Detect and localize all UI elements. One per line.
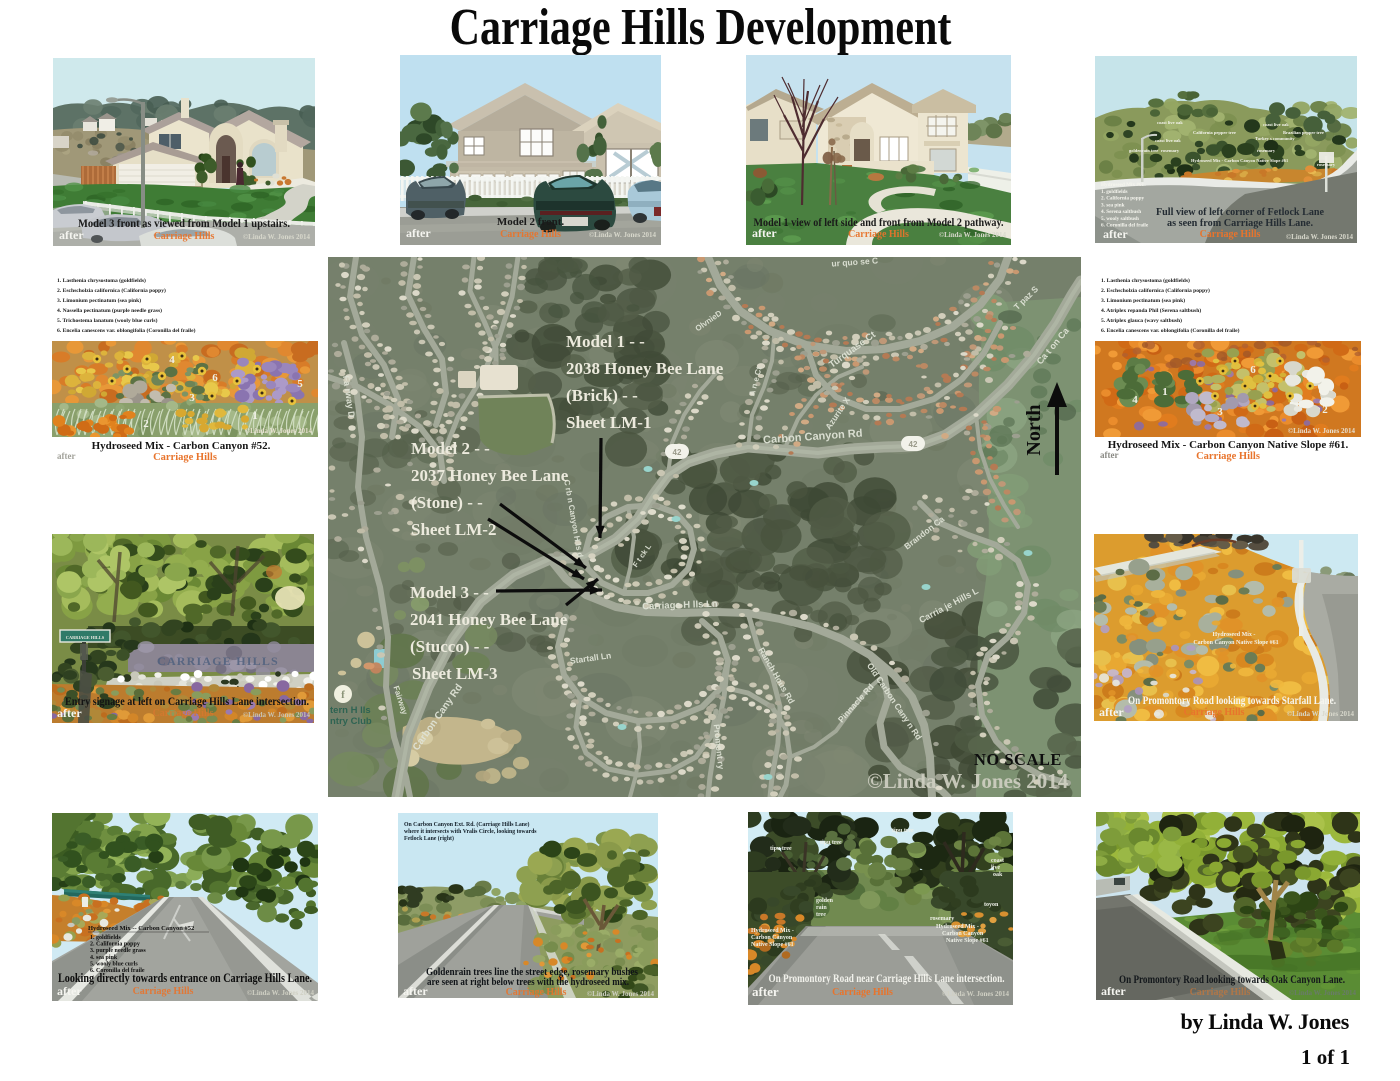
svg-text:Carriage Hills: Carriage Hills [506, 987, 567, 998]
svg-text:CARRIAGE HILLS: CARRIAGE HILLS [157, 654, 279, 668]
svg-text:2: 2 [1322, 404, 1328, 416]
svg-text:Brazilian pepper tree: Brazilian pepper tree [1283, 130, 1324, 135]
svg-text:Carriage Hills: Carriage Hills [154, 231, 215, 242]
svg-text:rain: rain [816, 905, 827, 911]
svg-text:2038 Honey Bee Lane: 2038 Honey Bee Lane [566, 359, 724, 378]
svg-text:as seen from Carriage Hills La: as seen from Carriage Hills Lane. [1167, 217, 1313, 229]
svg-text:after: after [752, 984, 779, 999]
svg-text:tipu tree: tipu tree [892, 828, 914, 834]
svg-text:after: after [59, 228, 84, 242]
svg-text:1. goldfields: 1. goldfields [1101, 189, 1128, 195]
svg-text:1: 1 [252, 410, 258, 422]
svg-text:Fetlock Lane (right): Fetlock Lane (right) [404, 835, 454, 842]
svg-text:Carriage Hills: Carriage Hills [1190, 987, 1251, 998]
svg-text:tipu tree: tipu tree [820, 840, 842, 846]
svg-text:5. wooly saltbush: 5. wooly saltbush [1101, 216, 1139, 222]
svg-text:CARRIAGE HILLS: CARRIAGE HILLS [66, 635, 105, 640]
svg-text:Carriage Hills: Carriage Hills [500, 229, 561, 240]
svg-text:California pepper tree: California pepper tree [1193, 130, 1236, 135]
svg-text:Carriage Hills: Carriage Hills [848, 229, 909, 240]
svg-text:©Linda W. Jones 2014: ©Linda W. Jones 2014 [1289, 989, 1357, 997]
svg-text:3. sea pink: 3. sea pink [1101, 202, 1125, 208]
svg-text:4. sea pink: 4. sea pink [90, 955, 118, 961]
svg-text:3. purple needle grass: 3. purple needle grass [90, 948, 146, 954]
svg-text:42: 42 [909, 440, 918, 449]
svg-text:after: after [1099, 705, 1124, 719]
svg-text:after: after [57, 984, 82, 998]
svg-text:Model 3 - -: Model 3 - - [410, 583, 489, 602]
svg-text:©Linda W. Jones 2014: ©Linda W. Jones 2014 [939, 231, 1007, 239]
svg-text:Hydroseed Mix -: Hydroseed Mix - [751, 928, 794, 934]
svg-text:after: after [403, 984, 428, 998]
svg-text:©Linda W. Jones 2014: ©Linda W. Jones 2014 [589, 231, 657, 239]
svg-text:Model 1 view of left side and: Model 1 view of left side and front from… [754, 217, 1004, 229]
svg-text:3: 3 [1217, 406, 1223, 418]
svg-text:©Linda W. Jones 2014: ©Linda W. Jones 2014 [587, 990, 655, 998]
svg-text:live: live [991, 865, 1000, 871]
svg-text:Model 2 front.: Model 2 front. [497, 216, 565, 228]
svg-text:On Promontory Road looking tow: On Promontory Road looking towards Oak C… [1119, 974, 1345, 986]
svg-text:goldenrain tree: goldenrain tree [1129, 148, 1158, 153]
svg-text:©Linda W. Jones 2014: ©Linda W. Jones 2014 [245, 427, 313, 435]
svg-text:1: 1 [1162, 386, 1168, 398]
svg-text:4: 4 [169, 354, 175, 366]
svg-text:golden: golden [816, 898, 834, 904]
svg-text:Sheet LM-1: Sheet LM-1 [566, 413, 651, 432]
svg-text:©Linda W. Jones 2014: ©Linda W. Jones 2014 [243, 233, 311, 241]
svg-text:after: after [57, 706, 82, 720]
svg-text:coast live oak: coast live oak [1155, 138, 1181, 143]
svg-text:4. Serena saltbush: 4. Serena saltbush [1101, 209, 1141, 215]
svg-text:coast live oak: coast live oak [1263, 122, 1289, 127]
svg-text:North: North [1023, 404, 1045, 455]
svg-text:rosemary: rosemary [1257, 148, 1276, 153]
svg-text:Carriage Hills: Carriage Hills [1200, 229, 1261, 240]
svg-text:Carbon Canyon: Carbon Canyon [751, 935, 793, 941]
svg-text:after: after [1101, 984, 1126, 998]
svg-text:Model 1 - -: Model 1 - - [566, 332, 645, 351]
svg-text:1. goldfields: 1. goldfields [90, 935, 121, 941]
svg-text:3: 3 [189, 392, 195, 404]
svg-text:(Stone) - -: (Stone) - - [411, 493, 483, 512]
svg-text:©Linda W. Jones 2014: ©Linda W. Jones 2014 [243, 711, 311, 719]
svg-text:Hydroseed Mix -: Hydroseed Mix - [936, 924, 979, 930]
svg-text:©Linda W. Jones 2014: ©Linda W. Jones 2014 [867, 769, 1069, 793]
svg-text:2: 2 [143, 418, 149, 430]
svg-text:Looking directly towards entra: Looking directly towards entrance on Car… [58, 971, 312, 985]
svg-text:Carriage Hills: Carriage Hills [1184, 707, 1245, 718]
svg-text:tern H lls: tern H lls [330, 705, 371, 716]
svg-text:rosemary: rosemary [1317, 162, 1336, 167]
svg-text:rosemary: rosemary [930, 916, 954, 922]
svg-text:Hydroseed Mix -: Hydroseed Mix - [1213, 632, 1256, 638]
svg-text:(Brick) - -: (Brick) - - [566, 386, 638, 405]
svg-text:©Linda W. Jones 2014: ©Linda W. Jones 2014 [1288, 427, 1356, 435]
svg-text:after: after [752, 226, 777, 240]
svg-text:Carbon Canyon Native Slope #61: Carbon Canyon Native Slope #61 [1193, 640, 1278, 646]
svg-text:4: 4 [1132, 394, 1138, 406]
svg-text:5. wooly blue curls: 5. wooly blue curls [90, 961, 138, 967]
svg-text:©Linda W. Jones 2014: ©Linda W. Jones 2014 [247, 989, 315, 997]
svg-text:tree: tree [816, 912, 826, 918]
svg-text:Carriage Hills: Carriage Hills [133, 986, 194, 997]
svg-text:Hydroseed Mix -- Carbon Canyon: Hydroseed Mix -- Carbon Canyon #52 [88, 925, 194, 932]
svg-text:after: after [1103, 227, 1128, 241]
svg-text:ntry Club: ntry Club [330, 716, 372, 727]
svg-text:On Carbon Canyon Ext. Rd. (Car: On Carbon Canyon Ext. Rd. (Carriage Hill… [404, 821, 530, 828]
svg-text:2037 Honey Bee Lane: 2037 Honey Bee Lane [411, 466, 569, 485]
svg-text:after: after [406, 226, 431, 240]
svg-text:Carriage Hills: Carriage Hills [832, 987, 893, 998]
svg-text:2. California poppy: 2. California poppy [1101, 196, 1144, 202]
svg-text:Sheet LM-3: Sheet LM-3 [412, 664, 497, 683]
svg-text:f: f [341, 689, 345, 701]
svg-text:coast: coast [991, 858, 1004, 864]
svg-text:©Linda W. Jones 2014: ©Linda W. Jones 2014 [1286, 233, 1354, 241]
svg-text:On Promontory Road looking tow: On Promontory Road looking towards Starf… [1128, 695, 1336, 707]
svg-text:rosemary: rosemary [1161, 148, 1180, 153]
svg-text:coast live oak: coast live oak [1157, 120, 1183, 125]
svg-text:tipu tree: tipu tree [770, 846, 792, 852]
svg-text:Hydroseed Mix #61:: Hydroseed Mix #61: [1101, 182, 1146, 188]
svg-text:Turkey s community: Turkey s community [1255, 136, 1295, 141]
svg-text:where it intersects with Vrali: where it intersects with Vralis Circle, … [404, 829, 537, 835]
svg-text:2. California poppy: 2. California poppy [90, 942, 140, 948]
svg-text:Model 2 - -: Model 2 - - [411, 439, 490, 458]
svg-text:oak: oak [993, 872, 1003, 878]
svg-text:Hydroseed Mix - Carbon Canyon: Hydroseed Mix - Carbon Canyon Native Slo… [1191, 158, 1289, 163]
svg-text:Carbon Canyon: Carbon Canyon [942, 931, 984, 937]
svg-text:Sheet LM-2: Sheet LM-2 [411, 520, 496, 539]
svg-text:On Promontory Road near Carria: On Promontory Road near Carriage Hills L… [769, 971, 1005, 985]
svg-text:Native Slope #61: Native Slope #61 [751, 942, 794, 948]
svg-text:6: 6 [212, 372, 218, 384]
svg-text:Carriage Hills: Carriage Hills [153, 708, 214, 719]
svg-text:toyon: toyon [984, 902, 999, 908]
svg-text:(Stucco) - -: (Stucco) - - [410, 637, 490, 656]
svg-text:©Linda W. Jones 2014: ©Linda W. Jones 2014 [1287, 710, 1355, 718]
svg-text:NO SCALE: NO SCALE [974, 750, 1062, 769]
svg-text:6: 6 [1250, 364, 1256, 376]
svg-text:42: 42 [673, 448, 682, 457]
svg-text:Native Slope #61: Native Slope #61 [946, 938, 989, 944]
svg-text:2041 Honey Bee Lane: 2041 Honey Bee Lane [410, 610, 568, 629]
svg-text:Entry signage at left on Carri: Entry signage at left on Carriage Hills … [65, 696, 309, 708]
svg-text:5: 5 [297, 378, 303, 390]
svg-text:Model 3 front as viewed from M: Model 3 front as viewed from Model 1 ups… [78, 216, 290, 230]
svg-text:©Linda W. Jones 2014: ©Linda W. Jones 2014 [942, 990, 1010, 998]
